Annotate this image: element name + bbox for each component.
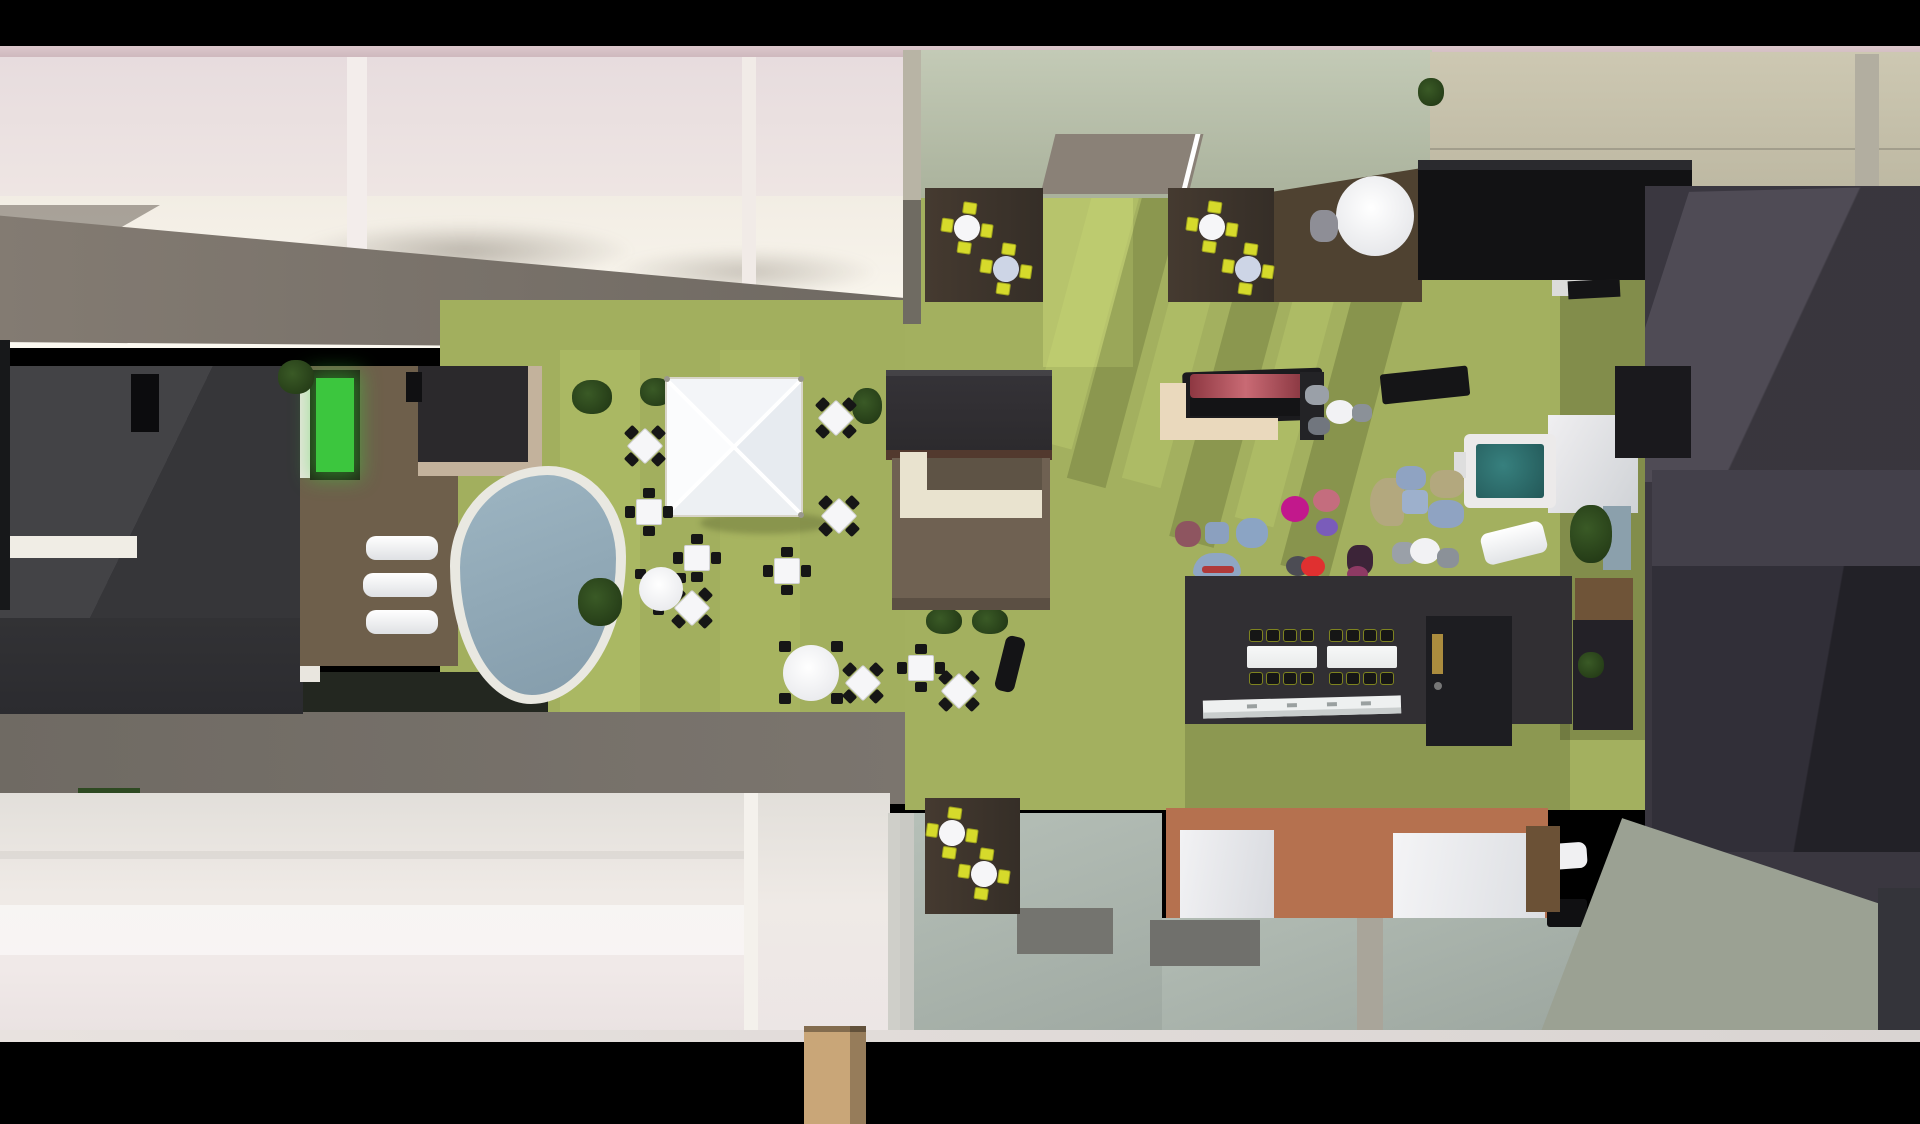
side-wood-band — [1575, 578, 1633, 624]
yellow-chair — [1243, 242, 1259, 256]
low-fin-shadow — [1652, 566, 1920, 852]
banquet-chair — [1346, 672, 1360, 685]
bistro-set-yellow — [955, 845, 1014, 904]
round-table — [991, 254, 1020, 283]
chair — [691, 534, 703, 544]
kitchen-gold-strip — [1432, 634, 1443, 674]
bottom-black-bar — [0, 1042, 1920, 1124]
chair — [915, 644, 927, 654]
banquet-chair — [1266, 629, 1280, 642]
banquet-set — [1327, 629, 1397, 685]
yellow-chair — [957, 863, 971, 879]
blue-armchair — [1236, 518, 1268, 548]
skylight-panel — [1041, 134, 1204, 194]
tan-chair — [1430, 470, 1464, 498]
cream-bench-horizontal — [900, 490, 1042, 518]
bush — [926, 608, 962, 634]
rooftop-courtyard-render — [0, 0, 1920, 1124]
banquet-chair — [1283, 672, 1297, 685]
yellow-chair — [940, 217, 954, 233]
banquet-chair — [1283, 629, 1297, 642]
wall-seam — [1430, 148, 1920, 150]
pavilion-deck — [892, 458, 1050, 610]
cabana-trim-right — [528, 366, 542, 476]
round-table-white — [1410, 538, 1440, 564]
white-partition-left — [1180, 830, 1274, 930]
chair — [801, 565, 811, 577]
banquet-chair — [1300, 629, 1314, 642]
roof-lower-zone — [0, 618, 303, 714]
yellow-chair — [980, 223, 994, 239]
square-table — [684, 545, 710, 571]
gray-chair — [1352, 404, 1372, 422]
white-roof-ridge — [744, 793, 758, 1045]
yellow-chair — [947, 806, 963, 820]
magenta-pouf — [1281, 496, 1309, 522]
banquet-chair — [1363, 629, 1377, 642]
yellow-chair — [997, 869, 1011, 885]
chair — [663, 506, 673, 518]
white-partition-right — [1393, 833, 1545, 930]
banquet-chair — [1249, 672, 1263, 685]
kitchen-knob — [1434, 682, 1442, 690]
canopy-edge-beam — [900, 813, 914, 1035]
red-pouf — [1301, 556, 1325, 577]
bistro-set-yellow — [977, 240, 1036, 299]
dark-corner-bottom-right — [1878, 888, 1920, 1034]
canopy-gray-panel — [1017, 908, 1113, 954]
yellow-chair — [979, 258, 993, 274]
roof-hatch — [131, 374, 159, 432]
yellow-chair — [995, 282, 1011, 296]
banquet-chair — [1346, 629, 1360, 642]
banquet-chair — [1380, 629, 1394, 642]
black-planter-short — [1568, 279, 1621, 300]
wood-slat-sliver — [1526, 826, 1560, 912]
gray-chair — [1305, 385, 1329, 405]
yellow-chair — [965, 828, 979, 844]
round-table — [952, 213, 981, 242]
sofa-red-stripe — [1202, 566, 1234, 573]
banquet-chair — [1300, 672, 1314, 685]
right-building-mid — [1652, 470, 1920, 566]
bar-mark — [1287, 703, 1297, 707]
yellow-chair — [962, 201, 978, 215]
yellow-chair — [979, 847, 995, 861]
round-table — [639, 567, 683, 611]
roof-sheen — [0, 905, 744, 955]
event-tent — [665, 377, 803, 517]
round-table — [1233, 254, 1262, 283]
chair — [831, 693, 843, 704]
concrete-pillar-right — [1855, 54, 1879, 190]
dining-set — [625, 488, 673, 536]
right-building-low — [1652, 566, 1920, 852]
sofa-cream-bench-h — [1160, 418, 1278, 440]
banquet-table — [1247, 646, 1317, 668]
blue-chair — [1428, 500, 1464, 528]
banquet-chair — [1363, 672, 1377, 685]
canopy-gray-panel — [1150, 920, 1260, 966]
purple-pouf — [1316, 518, 1338, 536]
chair — [763, 565, 773, 577]
roof-left-edge — [0, 340, 10, 610]
yellow-chair — [1261, 264, 1275, 280]
lounger — [363, 573, 437, 597]
yellow-chair — [1221, 258, 1235, 274]
square-table — [774, 558, 800, 584]
wall-beam-zone — [1430, 52, 1920, 144]
yellow-chair — [1207, 200, 1223, 214]
banquet-chair — [1249, 629, 1263, 642]
cabana-roof — [418, 366, 542, 476]
gray-chair — [1308, 417, 1330, 435]
deck-white-wall-low — [300, 666, 320, 682]
tent-post — [798, 376, 804, 382]
chair — [779, 693, 791, 704]
building-left-roof — [0, 366, 303, 714]
bistro-set-yellow — [1219, 240, 1278, 299]
chair — [643, 488, 655, 498]
yellow-chair — [956, 241, 972, 255]
bar-mark — [1361, 701, 1371, 705]
round-table — [937, 818, 966, 847]
bar-mark — [1327, 702, 1337, 706]
chair — [643, 526, 655, 536]
round-set-small — [635, 563, 687, 615]
yellow-chair — [941, 846, 957, 860]
bar-mark — [1247, 704, 1257, 708]
round-dining-set — [777, 639, 845, 707]
pavilion-roof — [886, 370, 1052, 452]
gray-chair — [1437, 548, 1459, 568]
yellow-chair — [1185, 216, 1199, 232]
pavilion-roof-highlight — [886, 370, 1052, 376]
round-table-white — [1326, 400, 1354, 424]
terracotta-floor — [1166, 808, 1548, 928]
bush — [578, 578, 622, 626]
outdoor-kitchen — [1426, 616, 1512, 746]
white-beam — [0, 536, 137, 558]
white-roof-bottom-a — [0, 793, 744, 1045]
lounger — [366, 536, 438, 560]
bush — [1418, 78, 1444, 106]
canopy-pillar — [1357, 918, 1383, 1035]
roof-ridge-b — [742, 57, 756, 297]
chair — [831, 641, 843, 652]
box-top-edge — [1418, 160, 1692, 170]
round-table — [1197, 212, 1226, 241]
tent-post — [798, 512, 804, 518]
banquet-chair — [1266, 672, 1280, 685]
chair — [781, 585, 793, 595]
canopy-pillar-left — [903, 50, 921, 202]
bush — [572, 380, 612, 414]
yellow-chair — [1225, 222, 1239, 238]
square-table — [908, 655, 934, 681]
column-side-shade — [850, 1026, 866, 1124]
bush — [1570, 505, 1612, 563]
chair — [625, 506, 635, 518]
banquet-table — [1327, 646, 1397, 668]
green-screen — [316, 378, 354, 472]
deck-bottom-shade — [892, 598, 1050, 610]
banquet-chair — [1329, 672, 1343, 685]
sofa-red-cushions — [1190, 374, 1314, 398]
round-table-top-right — [1336, 176, 1414, 256]
roof-line — [0, 851, 744, 859]
yellow-chair — [1237, 282, 1253, 296]
bush — [278, 360, 314, 394]
yellow-chair — [925, 822, 939, 838]
hot-tub-water — [1476, 444, 1544, 498]
sky-top — [0, 0, 1920, 46]
yellow-chair — [973, 887, 989, 901]
yellow-chair — [1201, 240, 1217, 254]
side-dark-box-2 — [1615, 366, 1691, 458]
yellow-chair — [1019, 264, 1033, 280]
tent-post — [664, 376, 670, 382]
sofa-front-black — [1190, 398, 1314, 416]
chair — [781, 547, 793, 557]
yellow-chair — [1001, 242, 1017, 256]
banquet-chair — [1380, 672, 1394, 685]
blue-pouf-square — [1205, 522, 1229, 544]
pink-pouf — [1313, 489, 1340, 512]
round-table — [969, 859, 998, 888]
maroon-chair — [1175, 521, 1201, 547]
deck-inner-dark — [927, 458, 1042, 490]
rattan-column — [804, 1026, 866, 1124]
blue-side-table — [1402, 490, 1428, 514]
hot-tub — [1464, 434, 1556, 508]
chair — [711, 552, 721, 564]
lawn-shadow-bottom-strip — [1185, 722, 1570, 810]
white-roof-bottom-b — [758, 793, 890, 1045]
chair — [779, 641, 791, 652]
bush — [1578, 652, 1604, 678]
bush — [972, 608, 1008, 634]
banquet-chair — [1329, 629, 1343, 642]
lounger — [366, 610, 438, 634]
blue-chair — [1396, 466, 1426, 490]
cabana-vent — [406, 372, 422, 402]
banquet-set — [1247, 629, 1317, 685]
gray-chair — [1310, 210, 1338, 242]
canopy-pillar-left-lower — [903, 200, 921, 324]
square-table — [636, 499, 662, 525]
dining-set — [763, 547, 811, 595]
round-table — [783, 645, 839, 701]
chair — [897, 662, 907, 674]
